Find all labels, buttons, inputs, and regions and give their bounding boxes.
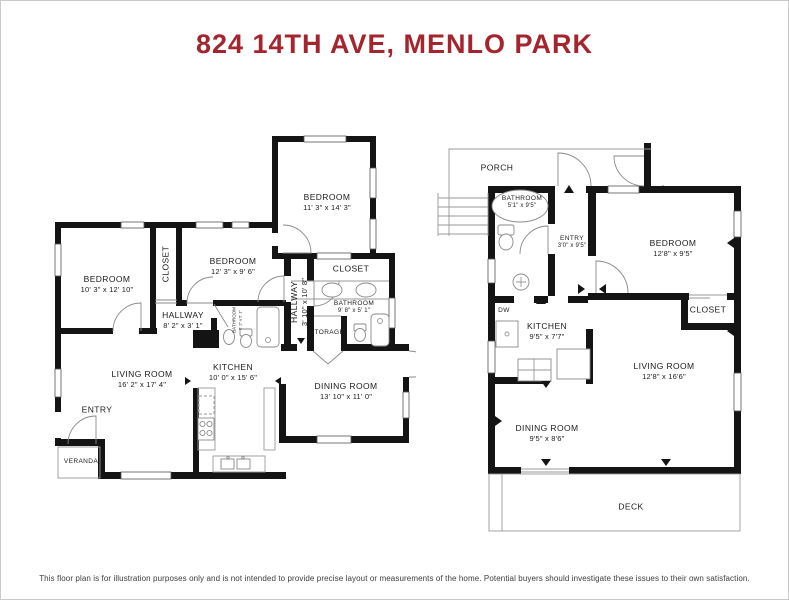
room-label-closet1: CLOSET — [161, 246, 172, 282]
toilet-bowl — [241, 335, 252, 348]
vanity-sink — [322, 283, 342, 297]
right-floorplan: PORCH BATHROOM5'1" x 9'5" ENTRY3'0" x 9'… — [436, 141, 746, 541]
room-label-entry: ENTRY3'0" x 9'5" — [558, 235, 586, 251]
room-label-porch: PORCH — [481, 163, 514, 174]
room-label-hallway1: HALLWAY8' 2" x 3' 1" — [162, 310, 204, 330]
room-label-closet2: CLOSET — [333, 264, 369, 275]
room-label-bedroom2: BEDROOM12' 3" x 9' 6" — [210, 256, 257, 276]
toilet-tank — [498, 225, 514, 235]
room-label-kitchen: KITCHEN9'5" x 7'7" — [527, 321, 567, 341]
fridge — [199, 396, 214, 414]
stairs — [438, 193, 488, 236]
sliding-door — [521, 469, 569, 472]
room-label-deck: DECK — [618, 502, 643, 513]
sink-basin — [221, 459, 234, 469]
floorplan-sheet: 824 14TH AVE, MENLO PARK — [0, 0, 789, 600]
closet-sliding-door — [689, 295, 727, 298]
left-floorplan: BEDROOM10' 3" x 12' 10" CLOSET BEDROOM12… — [51, 134, 416, 494]
room-label-living: LIVING ROOM12'8" x 16'6" — [633, 361, 694, 381]
disclaimer-text: This floor plan is for illustration purp… — [1, 574, 788, 583]
room-label-bathroom1: BATHROOM5' 2" x 5' 1" — [232, 307, 243, 333]
bathtub — [257, 307, 279, 347]
room-label-dining: DINING ROOM9'5" x 8'6" — [516, 423, 579, 443]
room-label-living: LIVING ROOM16' 2" x 17' 4" — [111, 369, 172, 389]
toilet-bowl — [355, 329, 366, 342]
room-label-bedroom3: BEDROOM11' 3" x 14' 3" — [303, 192, 351, 212]
sink-basin — [237, 459, 250, 469]
kitchen-counter-right — [264, 388, 275, 450]
right-fixtures — [489, 190, 740, 531]
room-label-storage: STORAGE — [310, 329, 344, 337]
room-label-entry: ENTRY — [82, 405, 113, 416]
kitchen-counter — [557, 349, 590, 379]
room-label-dw: DW — [498, 307, 510, 315]
page-title: 824 14TH AVE, MENLO PARK — [1, 29, 788, 60]
vanity-sink — [356, 283, 376, 297]
room-label-dining: DINING ROOM13' 10" x 11' 0" — [315, 381, 378, 401]
room-label-kitchen: KITCHEN10' 0" x 15' 6" — [209, 362, 257, 382]
dishwasher — [496, 321, 518, 347]
room-label-closet: CLOSET — [690, 305, 726, 316]
room-label-veranda: VERANDA — [64, 458, 98, 466]
room-label-bedroom1: BEDROOM10' 3" x 12' 10" — [81, 274, 134, 294]
right-floorplan-drawing — [436, 141, 746, 541]
room-label-bathroom: BATHROOM5'1" x 9'5" — [502, 195, 542, 211]
toilet-bowl — [499, 234, 513, 250]
stove — [198, 418, 214, 440]
entry-door-gap — [54, 412, 62, 438]
deck-outline — [489, 474, 740, 531]
room-label-hallway2: HALLWAY3' 10" x 10' 8" — [289, 278, 309, 326]
room-label-bathroom2: BATHROOM9' 8" x 5' 1" — [334, 300, 374, 316]
room-label-bedroom: BEDROOM12'8" x 9'5" — [650, 238, 697, 258]
